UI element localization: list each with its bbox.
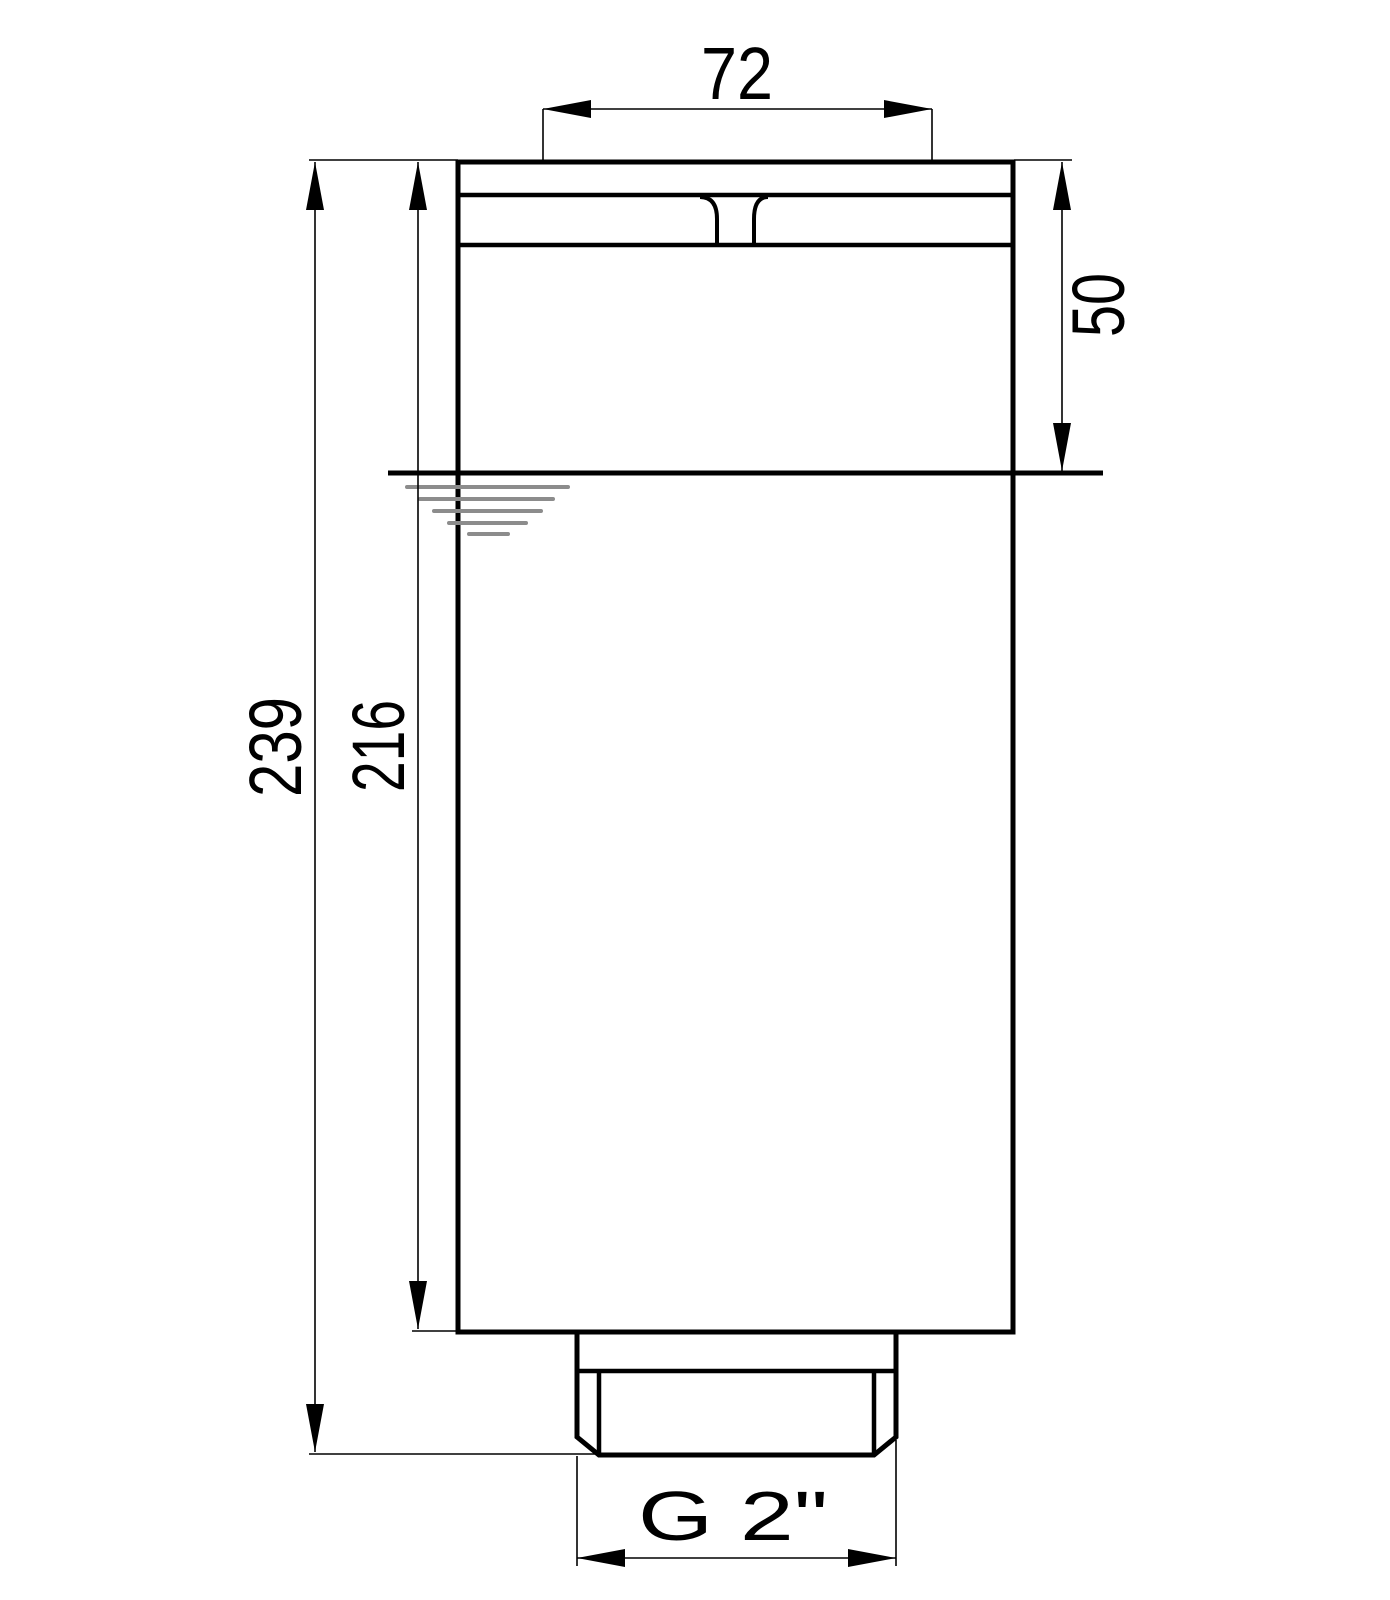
part-outline [458, 162, 1013, 1455]
dim-thread-label: G 2" [638, 1477, 828, 1555]
dim-50-arrow-top [1053, 162, 1071, 210]
dim-72-arrow-right [884, 100, 932, 118]
drawing-sheet: 72 50 239 216 [0, 0, 1390, 1600]
dim-72-arrow-left [543, 100, 591, 118]
body-outline [458, 162, 1013, 1332]
dim-239-arrow-top [306, 162, 324, 210]
dim-239-arrow-bottom [306, 1404, 324, 1452]
water-level-symbol [388, 473, 1103, 534]
dim-216-label: 216 [337, 700, 420, 792]
dimension-immersion-depth: 50 [1014, 160, 1140, 471]
funnel-detail-left [700, 197, 717, 243]
technical-drawing: 72 50 239 216 [0, 0, 1390, 1600]
dimension-overall-height: 239 [234, 160, 595, 1454]
dim-50-arrow-bottom [1053, 423, 1071, 471]
dim-72-label: 72 [701, 32, 773, 115]
dimension-top-width: 72 [543, 32, 932, 160]
dim-50-label: 50 [1057, 273, 1140, 337]
dimension-body-height: 216 [337, 162, 458, 1331]
thread-spigot-outline [577, 1333, 896, 1455]
dim-239-label: 239 [234, 697, 317, 797]
dim-thread-arrow-right [848, 1549, 896, 1567]
funnel-detail-right [754, 197, 768, 243]
dimension-thread: G 2" [577, 1440, 896, 1567]
dim-thread-arrow-left [577, 1549, 625, 1567]
dim-216-arrow-bottom [409, 1281, 427, 1329]
dim-216-arrow-top [409, 162, 427, 210]
